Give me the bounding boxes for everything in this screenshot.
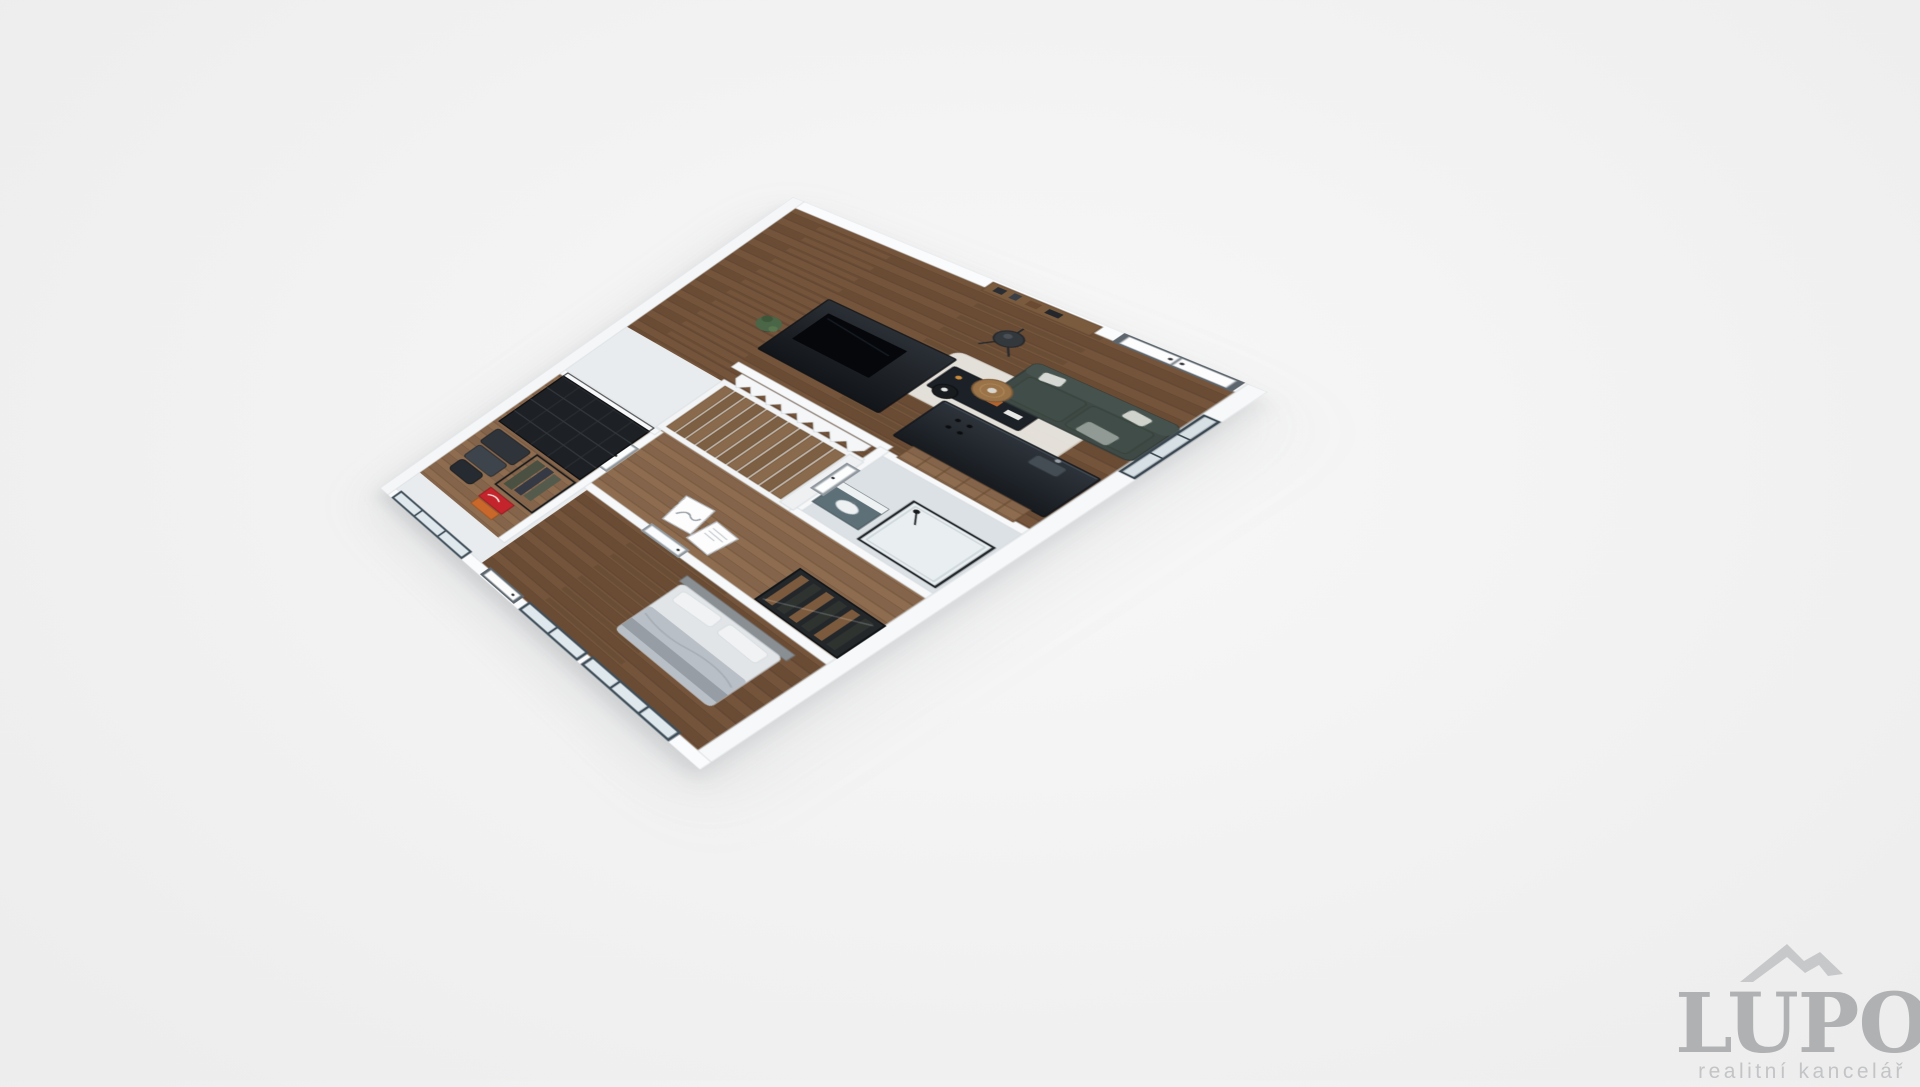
floorplan-scene: LUPO realitní kancelář (0, 0, 1920, 1080)
brand-logo-text: LUPO (1678, 976, 1920, 1072)
watermark-canvas: LUPO realitní kancelář (1678, 940, 1920, 1082)
apartment-3d-plan (380, 197, 1268, 770)
brand-tagline-text: realitní kancelář (1698, 1060, 1906, 1082)
agency-watermark: LUPO realitní kancelář (1678, 940, 1920, 1082)
plan-canvas (380, 197, 1268, 770)
